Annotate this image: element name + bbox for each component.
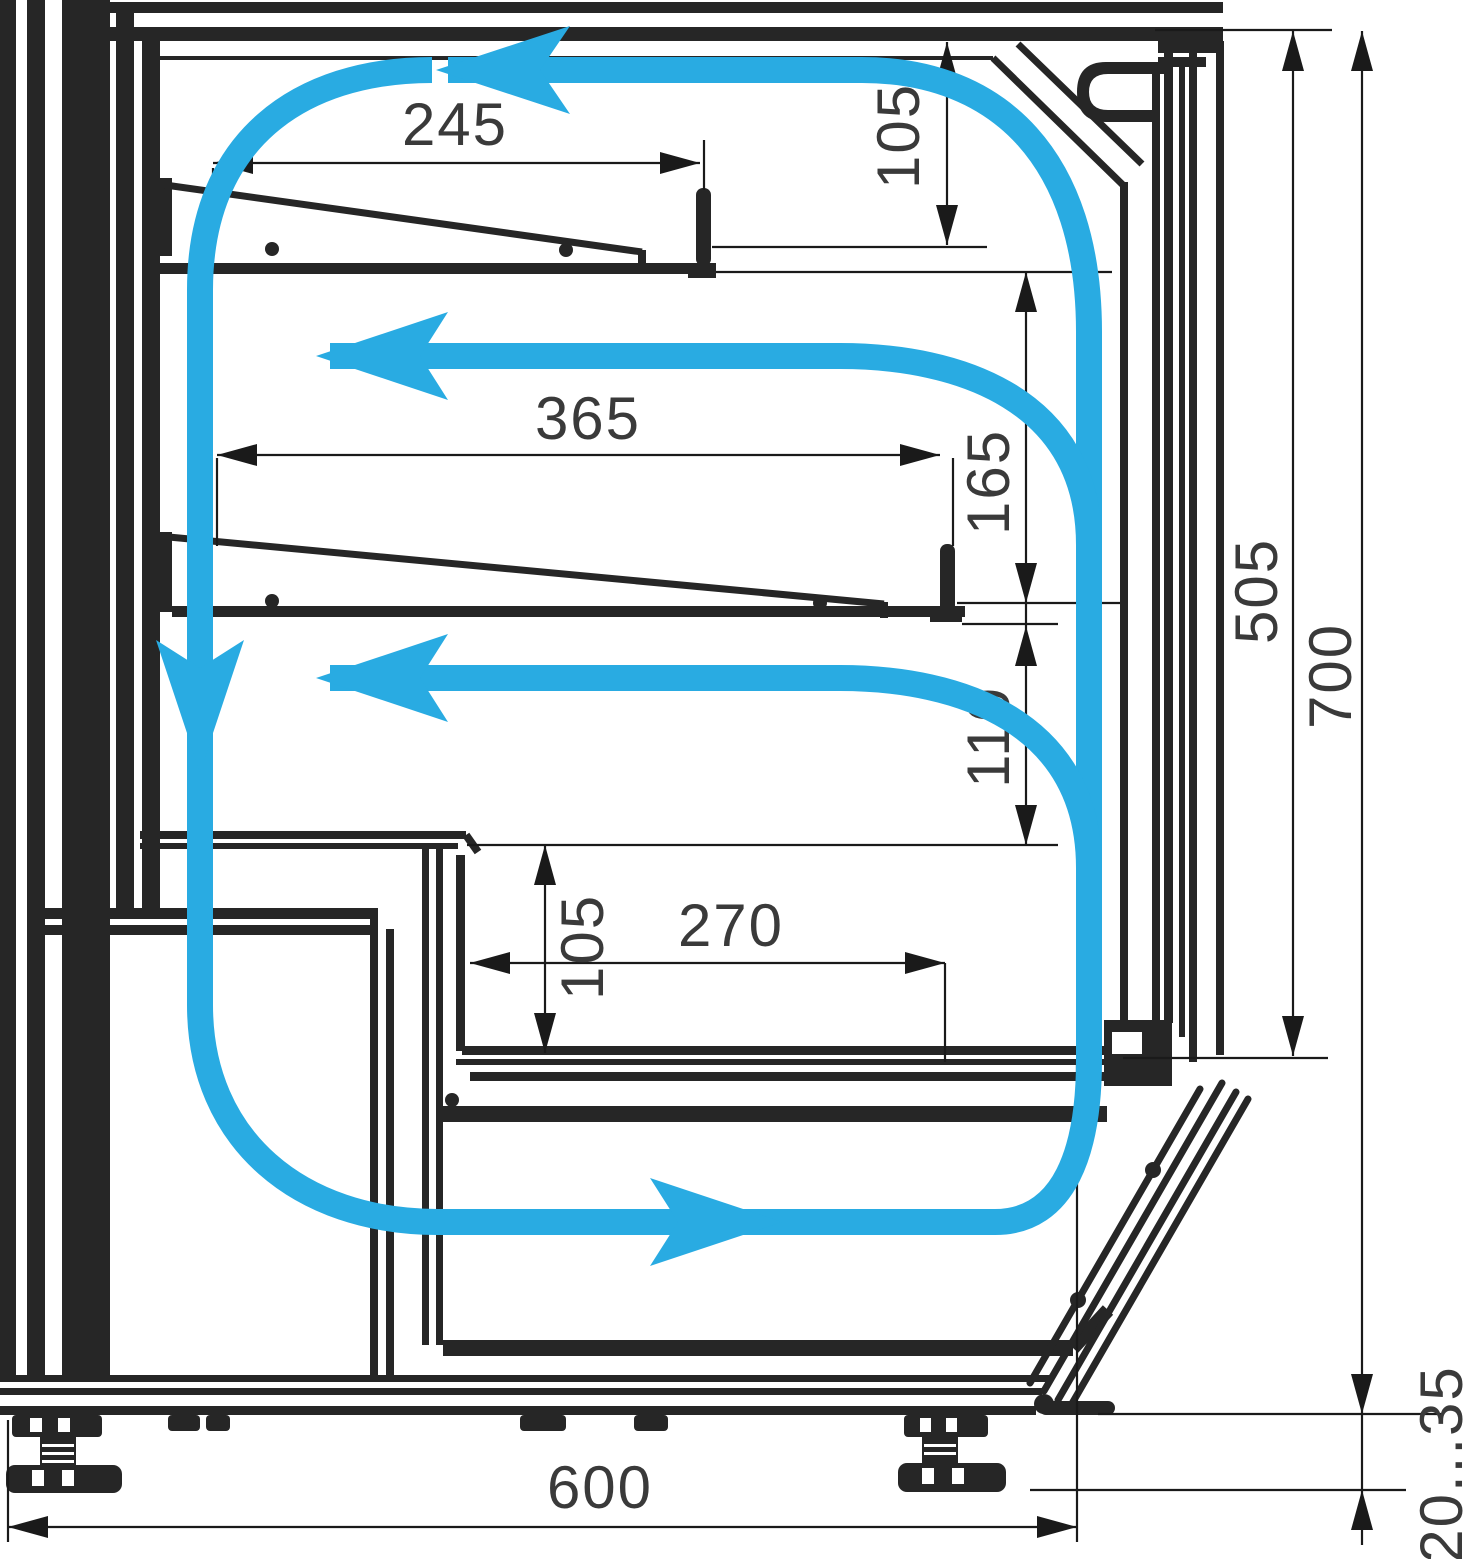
right-foot: [898, 1415, 1006, 1492]
arrowhead-right-icon: [900, 444, 940, 466]
dim-label-shelf1-depth: 245: [402, 91, 508, 158]
dim-label-canopy-clearance: 105: [865, 83, 932, 189]
arrowhead-right-icon: [660, 152, 700, 174]
dim-label-shelf-clearance: 165: [955, 429, 1022, 535]
arrowhead-up-icon: [1015, 626, 1037, 666]
arrowhead-up-icon: [1015, 272, 1037, 312]
arrowhead-left-icon: [470, 952, 510, 974]
display-case-section-drawing: 245 365 270 600 105 165 110 105 505 700 …: [0, 0, 1468, 1559]
arrowhead-down-icon: [936, 205, 958, 245]
base: [0, 1375, 1052, 1431]
shelf1-price-rail: [696, 188, 711, 266]
arrowhead-up-icon: [534, 845, 556, 885]
arrowhead-up-icon: [1351, 31, 1373, 71]
shelf1-bracket: [146, 178, 172, 256]
arrowhead-down-icon: [1351, 1374, 1373, 1414]
basin: [443, 1310, 1108, 1356]
arrowhead-right-icon: [905, 952, 945, 974]
dimension-labels: 245 365 270 600 105 165 110 105 505 700 …: [402, 83, 1468, 1559]
arrowhead-down-icon: [1282, 1016, 1304, 1056]
air-deck: [443, 1020, 1172, 1122]
shelf2-bracket: [146, 532, 172, 612]
shelf-1: [158, 184, 716, 278]
dim-label-deck-depth: 270: [678, 892, 784, 959]
shelf2-price-rail: [940, 544, 955, 618]
left-foot: [6, 1415, 122, 1493]
dim-label-foot-adjustment: 20...35: [1408, 1365, 1468, 1559]
arrowhead-right-icon: [1037, 1516, 1077, 1538]
front-glass: [1120, 41, 1224, 1062]
arrowhead-left-icon: [217, 444, 257, 466]
airflow-diagram: 245 365 270 600 105 165 110 105 505 700 …: [0, 0, 1468, 1559]
arrowhead-up-icon: [1282, 31, 1304, 71]
arrowhead-down-icon: [1015, 805, 1037, 845]
dim-label-inner-height: 505: [1223, 538, 1290, 644]
shelf-2: [158, 536, 965, 622]
dim-label-deck-clearance: 105: [549, 894, 616, 1000]
dimension-lines: [8, 30, 1442, 1545]
arrowhead-left-icon: [8, 1516, 48, 1538]
arrowhead-up-icon: [1351, 1490, 1373, 1530]
arrowhead-down-icon: [1015, 563, 1037, 603]
dim-label-shelf2-depth: 365: [535, 385, 641, 452]
dim-label-overall-depth: 600: [547, 1454, 653, 1521]
back-wall: [0, 0, 172, 1378]
slanted-front-panel: [1030, 1083, 1248, 1408]
dim-label-overall-height: 700: [1297, 623, 1364, 729]
